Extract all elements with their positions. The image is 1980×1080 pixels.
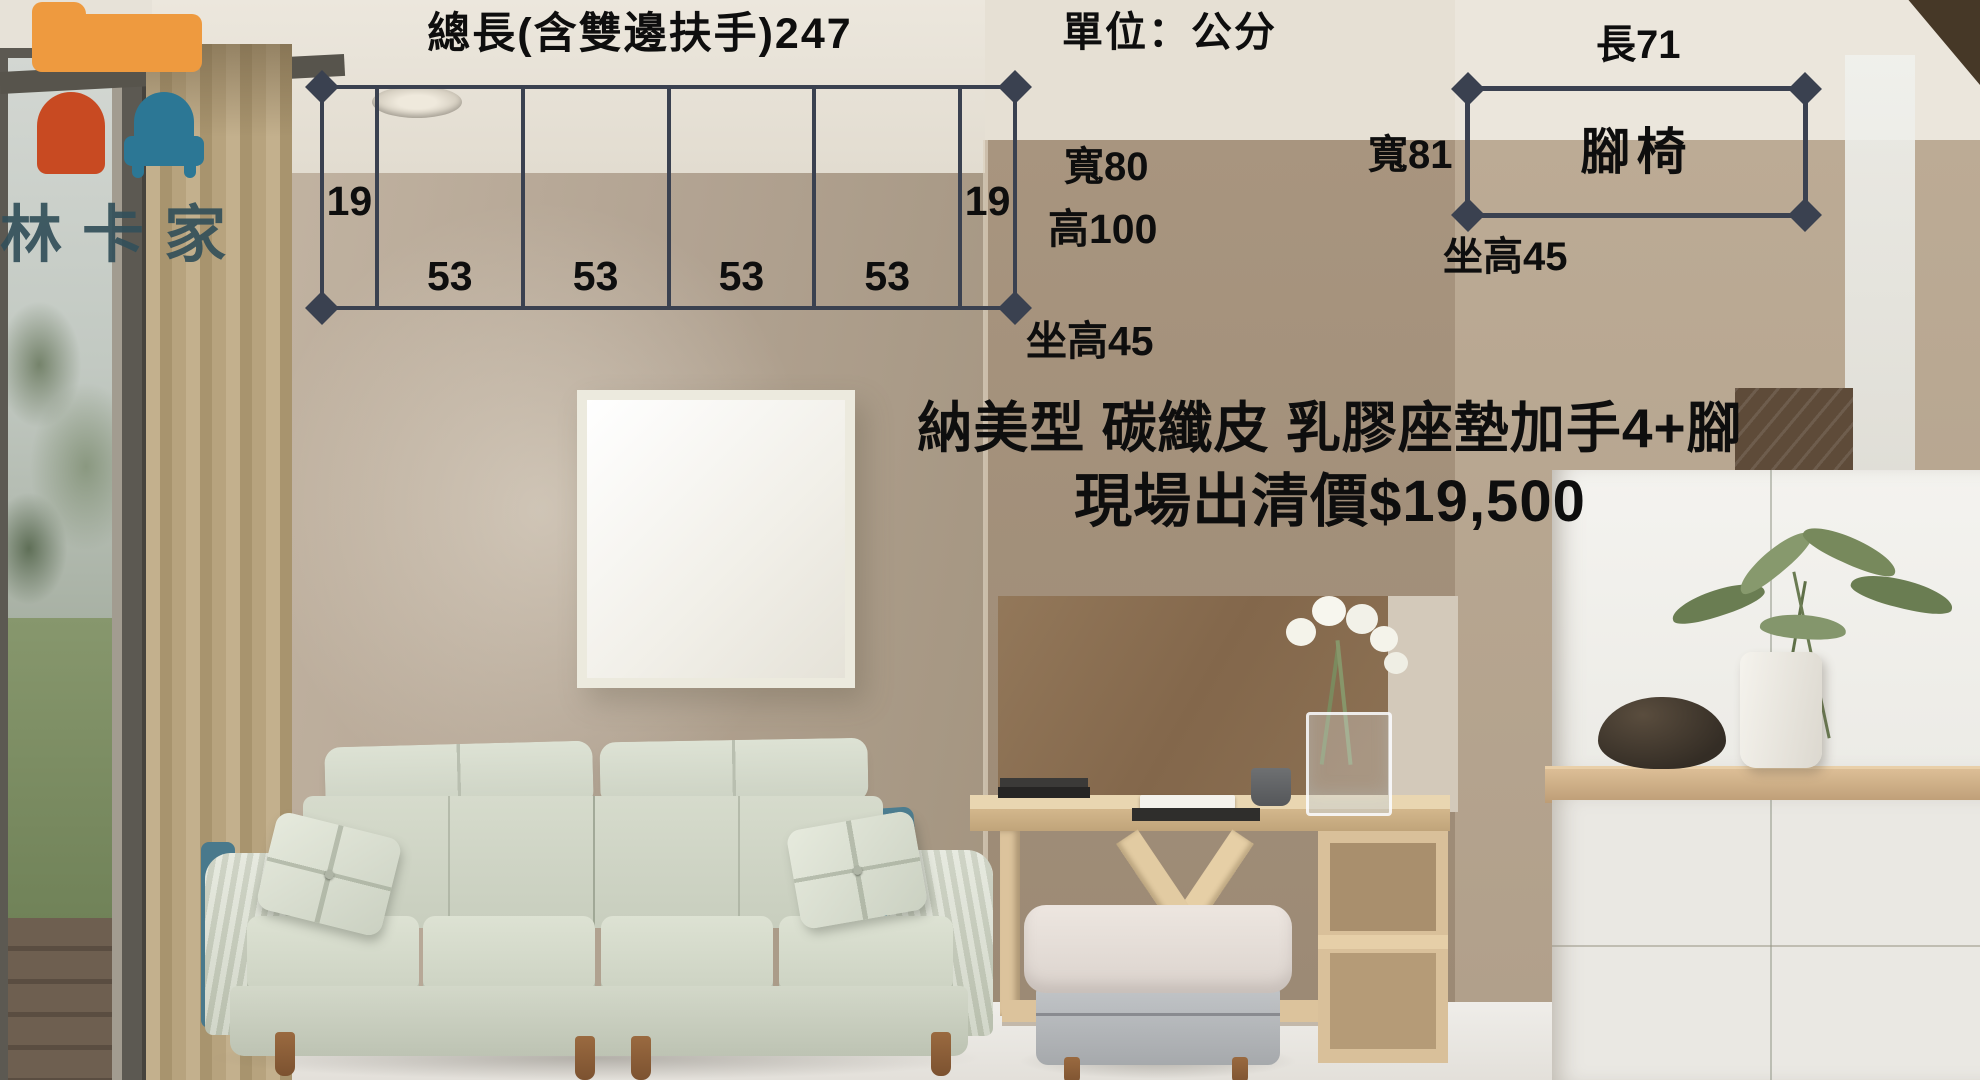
sofa-leg (575, 1036, 595, 1080)
table-leg (1000, 831, 1020, 1016)
segment-length-label: 53 (573, 253, 619, 300)
blossom (1312, 596, 1346, 626)
back-seam (593, 796, 595, 928)
segment-length-label: 53 (864, 253, 910, 300)
decor-vase (1740, 652, 1822, 768)
cup (1251, 768, 1291, 806)
segment-length-label: 19 (327, 178, 373, 225)
diagram-segment: 53 (525, 89, 671, 306)
footstool-label: 腳椅 (1581, 126, 1693, 179)
back-seam (738, 796, 740, 928)
leaf (1799, 519, 1901, 583)
diagram-segment: 53 (816, 89, 962, 306)
product-text-block: 納美型 碳纖皮 乳膠座墊加手4+腳 現場出清價$19,500 (905, 400, 1755, 533)
diagram-segment: 19 (962, 89, 1013, 306)
blossom (1384, 652, 1408, 674)
seat-cushion (779, 916, 953, 994)
ottoman (1018, 905, 1298, 1080)
product-price: 現場出清價$19,500 (905, 472, 1755, 533)
leaf (1759, 612, 1846, 642)
chair-foot (132, 164, 144, 178)
unit-note: 單位：公分 (1062, 11, 1277, 54)
leaf (1848, 568, 1956, 620)
cubby-cell (1330, 953, 1436, 1049)
poster: 林卡家 總長(含雙邊扶手)247 單位：公分 195353535319 寬80 … (0, 0, 1980, 1080)
ottoman-leg (1232, 1057, 1248, 1080)
back-seam (448, 796, 450, 928)
book (998, 787, 1090, 798)
grass (8, 618, 112, 938)
logo-chair-icon (124, 92, 204, 180)
wall-light-strip (1845, 55, 1915, 490)
sofa (205, 738, 995, 1080)
dark-folder (1132, 808, 1260, 821)
diagram-segment: 53 (379, 89, 525, 306)
logo-sofa-icon-back (32, 2, 86, 32)
segment-length-label: 53 (719, 253, 765, 300)
diagram-segment: 53 (671, 89, 817, 306)
picture-canvas (587, 400, 845, 678)
ottoman-top (1024, 905, 1292, 993)
sofa-leg (275, 1032, 295, 1076)
flower-bouquet (1280, 590, 1410, 720)
footstool-width-label: 寬81 (1368, 134, 1453, 176)
book (1000, 778, 1088, 787)
sofa-height-label: 高100 (1048, 208, 1157, 251)
footstool-length-label: 長71 (1596, 24, 1681, 66)
ottoman-body (1036, 985, 1280, 1065)
ottoman-seam (1036, 1013, 1280, 1016)
sofa-diagram-title: 總長(含雙邊扶手)247 (355, 12, 925, 57)
chair-foot (184, 164, 196, 178)
footstool-dimension-box: 腳椅 (1465, 86, 1808, 218)
white-book (1140, 795, 1235, 809)
glass-vase (1306, 712, 1392, 816)
table-cubby (1318, 831, 1448, 1063)
ottoman-leg (1064, 1057, 1080, 1080)
picture-frame (577, 390, 855, 688)
brand-watermark: 林卡家 (0, 184, 280, 274)
logo-armchair-icon (37, 92, 105, 174)
footstool-seat-height-label: 坐高45 (1443, 236, 1568, 278)
sofa-diagram-segments: 195353535319 (324, 89, 1013, 306)
segment-length-label: 53 (427, 253, 473, 300)
sofa-leg (631, 1036, 651, 1080)
seat-cushion (247, 916, 419, 994)
seat-cushion (423, 916, 595, 994)
sofa-seat-height-label: 坐高45 (1026, 320, 1154, 363)
cabinet-seam-h (1552, 945, 1980, 947)
wood-deck (8, 918, 112, 1080)
blossom (1370, 626, 1398, 652)
cubby-cell (1330, 843, 1436, 931)
cabinet-seam (1770, 800, 1772, 1080)
book-stack (998, 778, 1090, 800)
counter-shelf (1545, 766, 1980, 803)
blossom (1286, 618, 1316, 646)
lower-cabinet (1552, 800, 1980, 1080)
product-title: 納美型 碳纖皮 乳膠座墊加手4+腳 (905, 400, 1755, 458)
brand-logo (28, 0, 218, 185)
cubby-shelf (1318, 935, 1448, 949)
diagram-segment: 19 (324, 89, 379, 306)
seat-cushion (601, 916, 773, 994)
chair-seat (124, 136, 204, 166)
sofa-width-label: 寬80 (1064, 146, 1149, 188)
sofa-dimension-box: 195353535319 (320, 85, 1017, 310)
sofa-front-rail (230, 986, 968, 1056)
sofa-leg (931, 1032, 951, 1076)
segment-length-label: 19 (965, 178, 1011, 225)
